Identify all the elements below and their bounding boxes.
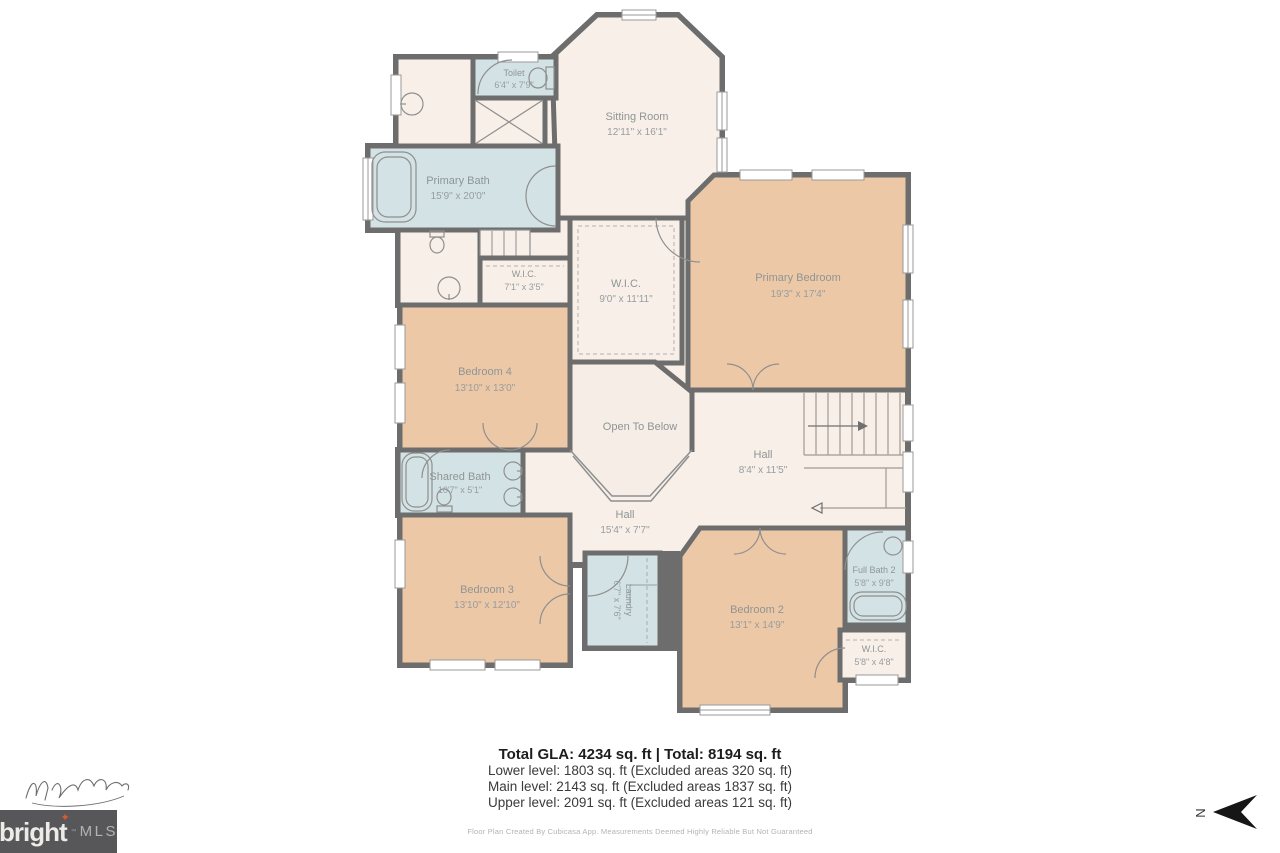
label-primary-bedroom: Primary Bedroom bbox=[755, 272, 841, 284]
shelf-chase bbox=[480, 230, 530, 258]
room-wic-primary bbox=[570, 218, 682, 363]
dims-wic2: 5'8" x 4'8" bbox=[854, 657, 893, 667]
total-gla: Total GLA: 4234 sq. ft | Total: 8194 sq.… bbox=[0, 747, 1280, 763]
floorplan-page: Toilet 6'4" x 7'9" Sitting Room 12'11" x… bbox=[0, 0, 1280, 853]
upper-level-area: Upper level: 2091 sq. ft (Excluded areas… bbox=[0, 795, 1280, 811]
trademark-symbol: ™ bbox=[71, 829, 77, 835]
room-linen-closet bbox=[473, 98, 545, 146]
label-open-to-below: Open To Below bbox=[603, 421, 677, 433]
room-bedroom2 bbox=[680, 528, 845, 710]
label-sitting: Sitting Room bbox=[606, 111, 669, 123]
dims-bedroom3: 13'10" x 12'10" bbox=[454, 600, 520, 611]
wall-chase bbox=[660, 551, 680, 648]
dims-hall-upper: 8'4" x 11'5" bbox=[739, 465, 788, 476]
dims-bedroom4: 13'10" x 13'0" bbox=[455, 383, 516, 394]
lower-level-area: Lower level: 1803 sq. ft (Excluded areas… bbox=[0, 763, 1280, 779]
logo-wordmark: bright ✦ bbox=[0, 819, 67, 845]
label-wic2: W.I.C. bbox=[862, 644, 887, 654]
label-bedroom3: Bedroom 3 bbox=[460, 584, 514, 596]
label-full-bath2: Full Bath 2 bbox=[852, 565, 895, 575]
room-vanity bbox=[396, 57, 473, 146]
dims-wic-small: 7'1" x 3'5" bbox=[504, 282, 543, 292]
bright-mls-logo: bright ✦ ™ MLS bbox=[0, 810, 117, 853]
label-hall-upper: Hall bbox=[754, 449, 773, 461]
floorplan-drawing: Toilet 6'4" x 7'9" Sitting Room 12'11" x… bbox=[0, 0, 1280, 853]
label-shared-bath: Shared Bath bbox=[429, 471, 490, 483]
disclaimer-text: Floor Plan Created By Cubicasa App. Meas… bbox=[0, 827, 1280, 836]
dims-full-bath2: 5'8" x 9'8" bbox=[854, 578, 893, 588]
agent-signature bbox=[18, 768, 138, 810]
label-toilet: Toilet bbox=[503, 68, 525, 78]
logo-mls-text: MLS bbox=[80, 823, 118, 840]
logo-bright-text: bright bbox=[0, 817, 67, 847]
star-icon: ✦ bbox=[60, 813, 68, 824]
dims-shared-bath: 10'7" x 5'1" bbox=[438, 485, 482, 495]
label-hall-lower: Hall bbox=[616, 509, 635, 521]
dims-primary-bath: 15'9" x 20'0" bbox=[431, 191, 486, 202]
dims-primary-bedroom: 19'3" x 17'4" bbox=[771, 289, 826, 300]
label-primary-bath: Primary Bath bbox=[426, 175, 490, 187]
label-bedroom4: Bedroom 4 bbox=[458, 366, 512, 378]
main-level-area: Main level: 2143 sq. ft (Excluded areas … bbox=[0, 779, 1280, 795]
label-bedroom2: Bedroom 2 bbox=[730, 604, 784, 616]
dims-wic-primary: 9'0" x 11'11" bbox=[599, 294, 653, 305]
label-laundry: Laundry bbox=[624, 584, 634, 617]
dims-hall-lower: 15'4" x 7'7" bbox=[600, 525, 650, 536]
dims-toilet: 6'4" x 7'9" bbox=[494, 80, 533, 90]
dims-bedroom2: 13'1" x 14'9" bbox=[730, 620, 785, 631]
room-wic2 bbox=[840, 630, 908, 680]
dims-sitting: 12'11" x 16'1" bbox=[607, 127, 667, 138]
label-wic-small: W.I.C. bbox=[512, 269, 537, 279]
area-summary: Total GLA: 4234 sq. ft | Total: 8194 sq.… bbox=[0, 747, 1280, 811]
label-wic-primary: W.I.C. bbox=[611, 278, 641, 290]
dims-laundry: 6'7" x 7'6" bbox=[612, 580, 622, 619]
